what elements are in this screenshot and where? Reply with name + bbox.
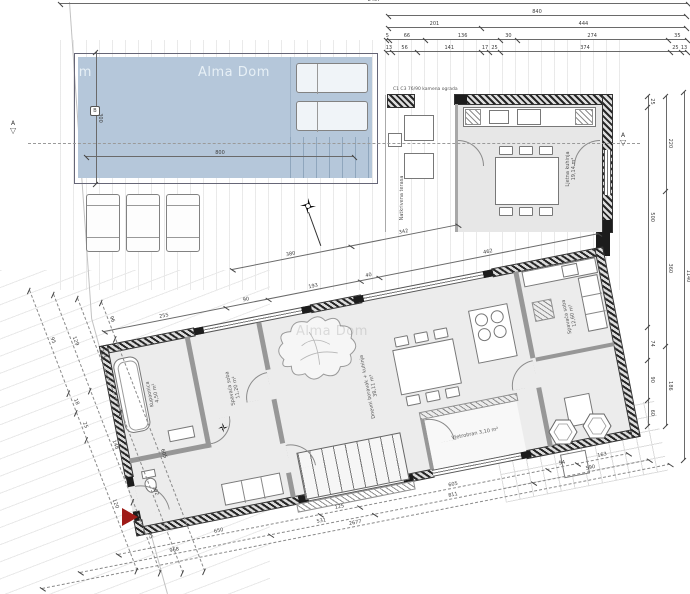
living-label: Dnevni boravak + kuhinja 38,11 m² xyxy=(357,346,384,427)
covered-terrace: Natkrivena terasa xyxy=(385,95,456,232)
dining-chair xyxy=(394,335,410,348)
dim-tick xyxy=(58,2,64,8)
section-triangle-icon: ▽ xyxy=(620,139,626,147)
sunbed-line xyxy=(167,205,199,206)
dim-value: 590 xyxy=(585,464,596,472)
hexagon-chair-icon xyxy=(548,418,578,446)
dim-value: 90 xyxy=(242,296,249,303)
partition-wall xyxy=(535,342,614,361)
dining-chair xyxy=(433,327,449,340)
door-arc xyxy=(206,416,234,444)
dim-value: 66 xyxy=(404,33,410,39)
compass-icon xyxy=(300,198,316,214)
dining-chair xyxy=(445,386,461,399)
dim-value: 163 xyxy=(597,451,608,459)
dim-value: 800 xyxy=(215,150,225,156)
kitchen-island xyxy=(468,303,518,364)
dim-chain-right-3: 1140 xyxy=(684,92,685,460)
side-table xyxy=(388,133,402,147)
dim-value: 90 xyxy=(649,377,655,383)
burner-icon xyxy=(474,312,489,327)
dining-chair xyxy=(519,146,533,155)
summer-kitchen-room: Ljetna kuhinja 19,14 m² xyxy=(455,95,612,232)
dining-chair xyxy=(519,207,533,216)
dim-value: 374 xyxy=(580,45,590,51)
dim-value: 136 xyxy=(458,33,468,39)
dim-value: 220 xyxy=(667,139,673,149)
partition-wall xyxy=(286,472,296,497)
dim-chain-top-full: 8407 xyxy=(60,3,688,4)
wardrobe-divider xyxy=(582,292,602,297)
facade-column xyxy=(353,295,364,304)
fence-note: C1 C3 76/90 kamena ograda xyxy=(393,87,458,92)
door-arc xyxy=(286,440,317,471)
facade-column xyxy=(193,327,204,336)
dining-chair xyxy=(413,331,429,344)
sunbed-line xyxy=(167,237,199,238)
dim-value: 444 xyxy=(579,21,589,27)
garden-sunbed xyxy=(126,194,160,252)
dim-chain-top-2: 201444 xyxy=(388,27,686,28)
burner-icon xyxy=(492,324,507,339)
pool: Alma Dom Alma Dom xyxy=(78,57,372,178)
sunbed-line xyxy=(87,237,119,238)
kitchen-appliance xyxy=(465,109,481,125)
pavilion-top-wall xyxy=(455,95,612,104)
dim-tick xyxy=(663,424,669,430)
dim-tick xyxy=(663,344,669,350)
fence-note-text: C1 C3 76/90 kamena ograda xyxy=(393,87,458,92)
dim-tick xyxy=(667,463,673,468)
dim-value: 2677 xyxy=(348,519,362,527)
pool-sunbed xyxy=(296,101,368,131)
terrace-label: Natkrivena terasa xyxy=(399,168,405,228)
dim-tick xyxy=(686,2,690,8)
floor-plan-canvas: 8407840201444566136302743513561411725374… xyxy=(0,0,690,594)
dim-value: 60 xyxy=(649,410,655,416)
watermark-pool: Alma Dom xyxy=(198,65,270,80)
dim-value: 56 xyxy=(401,45,407,51)
dim-value: 201 xyxy=(430,21,440,27)
dim-value: 380 xyxy=(286,250,297,258)
dim-value: 840 xyxy=(532,9,542,15)
partition-wall xyxy=(129,442,211,463)
bedroom2-label: Spavaća soba 12,60 m² xyxy=(558,287,581,346)
dim-chain-top-4: 135614117253742513 xyxy=(386,51,687,52)
dim-value: 274 xyxy=(587,33,597,39)
dim-value: 1140 xyxy=(685,270,690,283)
dim-tick xyxy=(645,105,651,111)
dining-chair xyxy=(539,207,553,216)
dim-value: 8407 xyxy=(368,0,381,3)
dim-value: 462 xyxy=(483,248,494,256)
dim-chain-right-1: 25500749060 xyxy=(648,96,649,426)
partition-wall xyxy=(272,399,286,444)
armchair xyxy=(404,115,434,141)
dim-chain-pool-side: 300 xyxy=(96,52,97,184)
dim-value: 40 xyxy=(365,272,372,279)
dim-value: 193 xyxy=(308,283,319,291)
dim-value: 186 xyxy=(667,381,673,391)
section-line-a xyxy=(28,143,640,144)
dim-chain-top-3: 5661363027435 xyxy=(386,39,687,40)
burner-icon xyxy=(477,327,492,342)
dim-tick xyxy=(684,14,690,20)
dim-value: 605 xyxy=(448,481,459,489)
dim-tick xyxy=(663,188,669,194)
kitchen-sink xyxy=(489,110,509,124)
dim-tick xyxy=(386,14,392,20)
dim-chain-right-2: 220360186 xyxy=(666,96,667,426)
kitchen-stove xyxy=(517,109,541,125)
door-arc xyxy=(507,360,538,391)
dim-value: 531 xyxy=(316,517,327,525)
dim-tick xyxy=(685,38,690,44)
dim-tick xyxy=(665,38,671,44)
dining-chair xyxy=(425,390,441,403)
pavilion-corner-column xyxy=(455,95,467,104)
dining-chair xyxy=(405,394,421,407)
facade-column xyxy=(483,269,494,278)
dining-chair xyxy=(499,146,513,155)
dim-tick xyxy=(684,26,690,32)
armchair xyxy=(404,153,434,179)
dim-value: 35 xyxy=(674,33,680,39)
section-marker-right: A ▽ xyxy=(620,132,626,147)
sunbed-line xyxy=(87,205,119,206)
burner-icon xyxy=(490,309,505,324)
dining-table xyxy=(495,157,559,205)
bedroom1-label: Spavaća soba 11,20 m² xyxy=(222,358,245,417)
wardrobe-divider xyxy=(260,477,265,499)
dim-tick xyxy=(645,358,651,364)
pavilion-corner-column xyxy=(603,220,612,232)
pool-marker-label: B xyxy=(93,108,96,114)
entrance-marker-icon xyxy=(122,508,138,526)
watermark-pool-partial: Alma Dom xyxy=(78,65,92,80)
washbasin xyxy=(168,425,196,442)
dim-value: 650 xyxy=(213,527,224,535)
sunbed-headrest-line xyxy=(317,102,319,132)
dim-tick xyxy=(357,505,363,510)
pool-marker-b: B xyxy=(90,106,100,116)
terrace-column-wall xyxy=(388,95,414,107)
dim-value: 141 xyxy=(444,45,454,51)
shower xyxy=(532,298,556,322)
dining-chair xyxy=(539,146,553,155)
sunbed-headrest-line xyxy=(317,64,319,94)
dim-tick xyxy=(372,513,378,518)
terrace-name: Natkrivena terasa xyxy=(399,176,405,221)
garden-sunbed xyxy=(86,194,120,252)
dim-tick xyxy=(479,26,485,32)
dim-tick xyxy=(663,94,669,100)
kitchen-fridge xyxy=(575,109,593,125)
dim-tick xyxy=(681,90,687,96)
section-triangle-icon: ▽ xyxy=(10,127,16,135)
wardrobe-divider xyxy=(586,310,606,315)
dim-tick xyxy=(685,50,690,56)
pool-sunbed xyxy=(296,63,368,93)
dim-value: 25 xyxy=(649,98,655,104)
dim-value: 74 xyxy=(649,340,655,346)
dim-tick xyxy=(681,458,687,464)
sunbed-line xyxy=(127,205,159,206)
dim-value: 342 xyxy=(398,228,409,236)
garden-sunbed xyxy=(166,194,200,252)
door-arc xyxy=(242,372,273,403)
dim-value: 360 xyxy=(667,264,673,274)
dim-chain-pool-width: 800 xyxy=(86,156,354,157)
dim-value: 125 xyxy=(334,503,345,511)
dim-value: 94 xyxy=(558,459,565,466)
pavilion-left-wall xyxy=(455,104,458,232)
dim-value: 255 xyxy=(159,312,170,320)
pavilion-right-window xyxy=(604,150,611,195)
dim-value: 500 xyxy=(649,212,655,222)
dim-tick xyxy=(645,325,651,331)
dim-value: 30 xyxy=(505,33,511,39)
dim-chain-top-1: 840 xyxy=(388,15,686,16)
dining-chair xyxy=(499,207,513,216)
dim-tick xyxy=(386,26,392,32)
section-marker-left: A ▽ xyxy=(10,120,16,135)
room-area: 19,14 m² xyxy=(571,158,577,181)
wardrobe-divider xyxy=(241,481,246,503)
hexagon-chair-icon xyxy=(582,412,612,440)
dim-value: 811 xyxy=(448,491,459,499)
watermark-faint: Alma Dom xyxy=(296,324,368,339)
sunbed-line xyxy=(127,237,159,238)
summer-kitchen-label: Ljetna kuhinja 19,14 m² xyxy=(565,139,577,199)
